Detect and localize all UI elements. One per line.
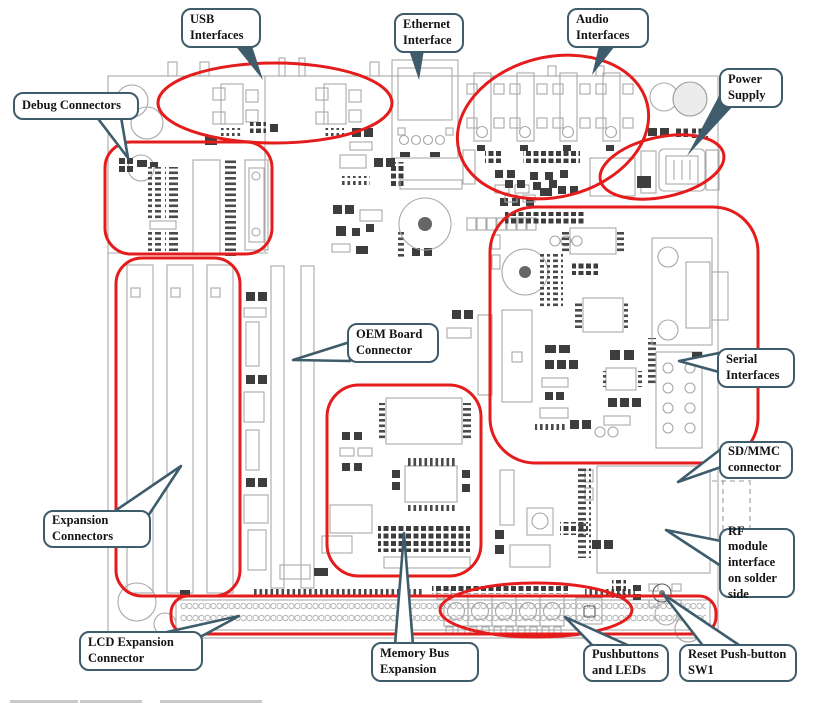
callout-reset-push-button: Reset Push-button SW1	[679, 644, 797, 682]
callout-memory-bus-expansion: Memory Bus Expansion	[371, 642, 479, 682]
callout-oem-board-connector: OEM Board Connector	[347, 323, 439, 363]
callout-pushbuttons-and-leds: Pushbuttons and LEDs	[583, 644, 669, 682]
callout-power-supply: Power Supply	[719, 68, 783, 108]
callout-debug-connectors: Debug Connectors	[13, 92, 139, 120]
page-bottom-artifact	[10, 700, 262, 703]
callout-serial-interfaces: Serial Interfaces	[717, 348, 795, 388]
callout-lcd-expansion-connector: LCD Expansion Connector	[79, 631, 203, 671]
board-diagram: USB Interfaces Ethernet Interface Audio …	[0, 0, 839, 707]
callout-expansion-connectors: Expansion Connectors	[43, 510, 151, 548]
callout-sdmmc-connector: SD/MMC connector	[719, 441, 793, 479]
callout-audio-interfaces: Audio Interfaces	[567, 8, 649, 48]
callout-usb-interfaces: USB Interfaces	[181, 8, 261, 48]
callout-rf-module-interface: RF module interface on solder side	[719, 528, 795, 598]
callout-ethernet-interface: Ethernet Interface	[394, 13, 464, 53]
